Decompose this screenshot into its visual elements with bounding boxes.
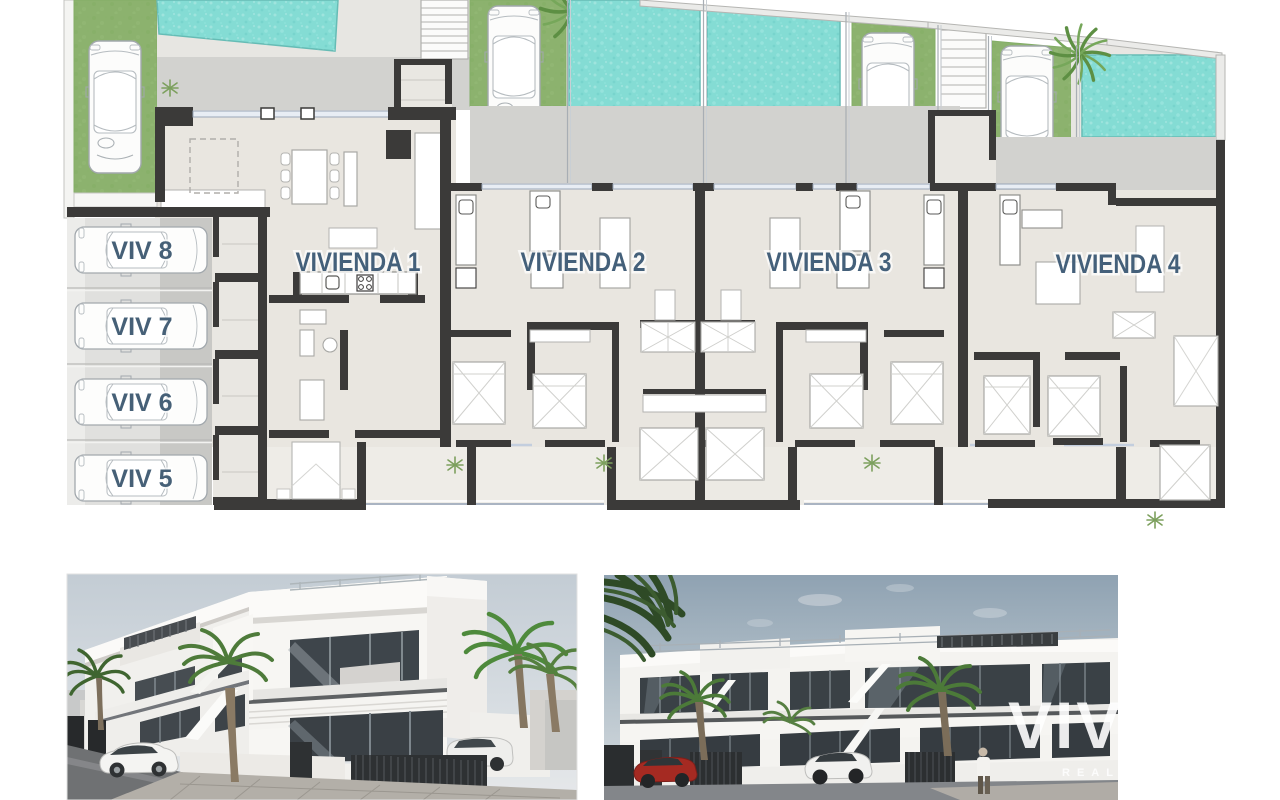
svg-text:VIVIENDA 2: VIVIENDA 2 <box>521 247 646 277</box>
svg-text:VIV 8: VIV 8 <box>111 237 172 265</box>
svg-text:VIVIENDA 3: VIVIENDA 3 <box>767 247 892 277</box>
svg-text:VIV 5: VIV 5 <box>111 465 172 493</box>
svg-text:VIVIENDA 4: VIVIENDA 4 <box>1056 249 1181 279</box>
svg-text:VIV 7: VIV 7 <box>111 313 172 341</box>
svg-text:VIVIENDA 1: VIVIENDA 1 <box>296 247 421 277</box>
svg-text:REAL: REAL <box>1062 767 1120 779</box>
svg-text:VIV 6: VIV 6 <box>111 389 172 417</box>
